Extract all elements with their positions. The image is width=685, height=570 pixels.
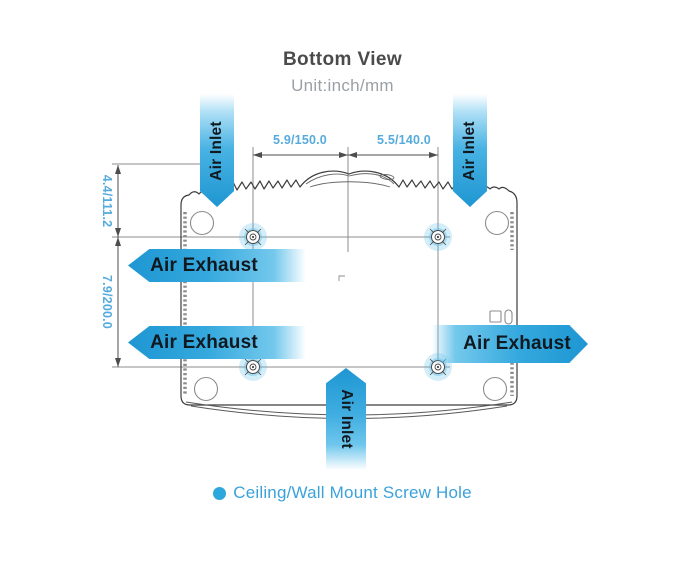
air-exhaust-arrow-right: Air Exhaust [432,325,588,363]
air-inlet-arrow-top-left: Air Inlet [200,94,234,207]
air-exhaust-label: Air Exhaust [150,255,258,277]
foot-pad [195,378,218,401]
center-mark [339,276,345,281]
top-hump-detail [306,174,394,187]
dimension-side-upper: 4.4/111.2 [99,156,115,246]
legend: Ceiling/Wall Mount Screw Hole [0,483,685,503]
air-exhaust-label: Air Exhaust [463,333,571,355]
dimension-top-left: 5.9/150.0 [255,133,345,147]
screw-hole-legend-icon [213,487,226,500]
air-exhaust-arrow-left-upper: Air Exhaust [128,249,306,282]
page-subtitle: Unit:inch/mm [0,76,685,96]
foot-pad [486,212,509,235]
air-exhaust-label: Air Exhaust [150,332,258,354]
air-inlet-label: Air Inlet [461,121,479,181]
page-title: Bottom View [0,49,685,71]
air-inlet-label: Air Inlet [337,389,355,449]
foot-pad [484,378,507,401]
bottom-view-diagram: Bottom View Unit:inch/mm 5.9/150.0 5.5/1… [0,0,685,570]
screw-hole-marker [424,223,452,251]
dimension-side-lower: 7.9/200.0 [99,257,115,347]
screw-hole-marker [239,223,267,251]
air-inlet-label: Air Inlet [208,121,226,181]
air-inlet-arrow-top-right: Air Inlet [453,94,487,207]
bottom-details [339,276,512,324]
legend-text: Ceiling/Wall Mount Screw Hole [233,483,472,503]
air-inlet-arrow-bottom: Air Inlet [326,368,366,470]
air-exhaust-arrow-left-lower: Air Exhaust [128,326,306,359]
device-outline [181,171,517,405]
dimension-top-right: 5.5/140.0 [359,133,449,147]
foot-pad [191,212,214,235]
detail-square [490,311,501,322]
detail-pill [505,310,512,324]
